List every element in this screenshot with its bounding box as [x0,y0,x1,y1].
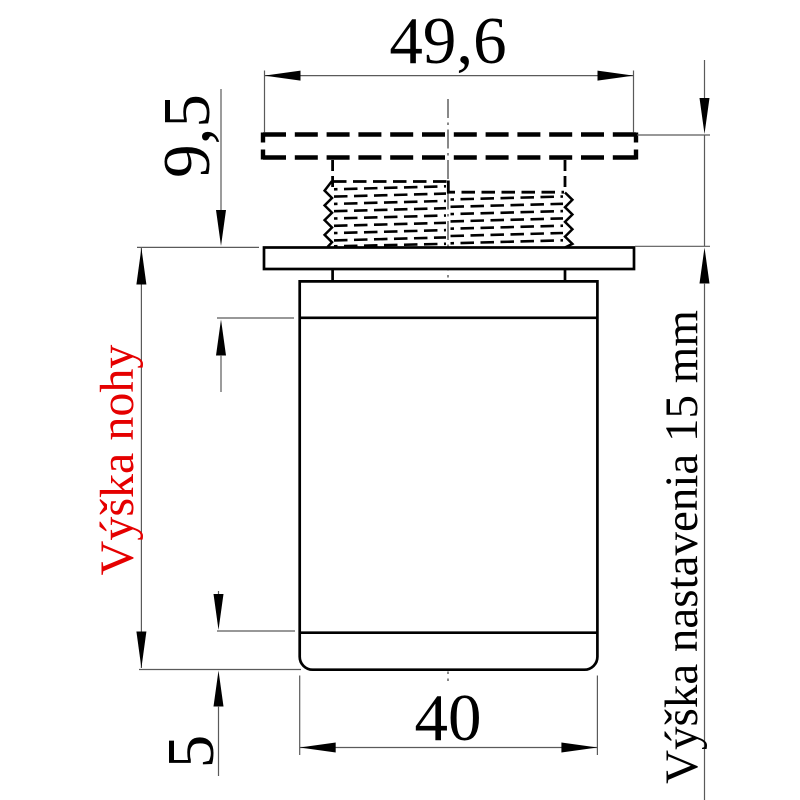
svg-text:Výška nastavenia 15 mm: Výška nastavenia 15 mm [656,310,708,784]
svg-text:49,6: 49,6 [389,4,506,78]
svg-text:5: 5 [154,735,228,769]
svg-text:40: 40 [415,681,482,755]
svg-text:Výška nohy: Výška nohy [91,345,144,576]
svg-text:9,5: 9,5 [150,94,224,178]
